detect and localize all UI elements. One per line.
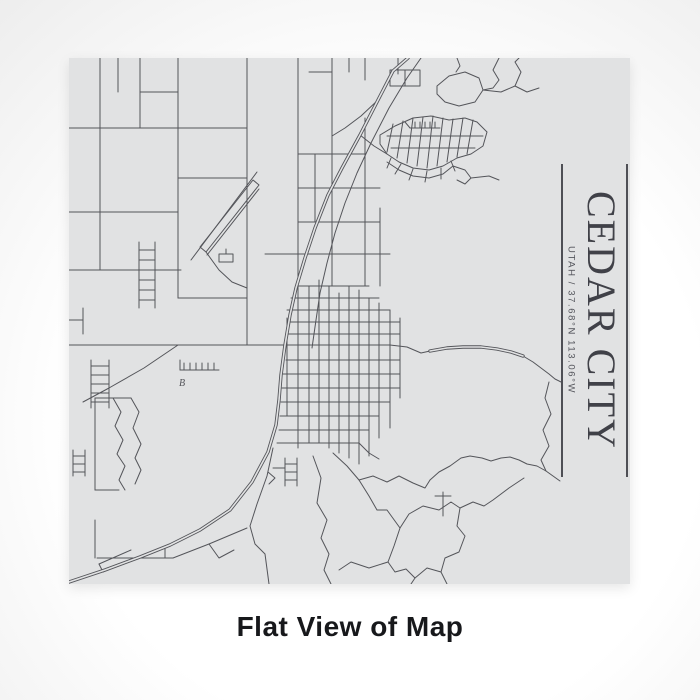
map-title: CEDAR CITY <box>581 164 621 477</box>
map-subtitle: UTAH / 37.68°N 113.06°W <box>565 164 576 477</box>
title-rule-right <box>626 164 628 477</box>
title-rule-left <box>561 164 563 477</box>
map-tiny-label: B <box>179 378 185 389</box>
map-roads-svg <box>69 58 630 584</box>
view-caption: Flat View of Map <box>0 611 700 643</box>
map-card: B CEDAR CITY UTAH / 37.68°N 113.06°W <box>69 58 630 584</box>
